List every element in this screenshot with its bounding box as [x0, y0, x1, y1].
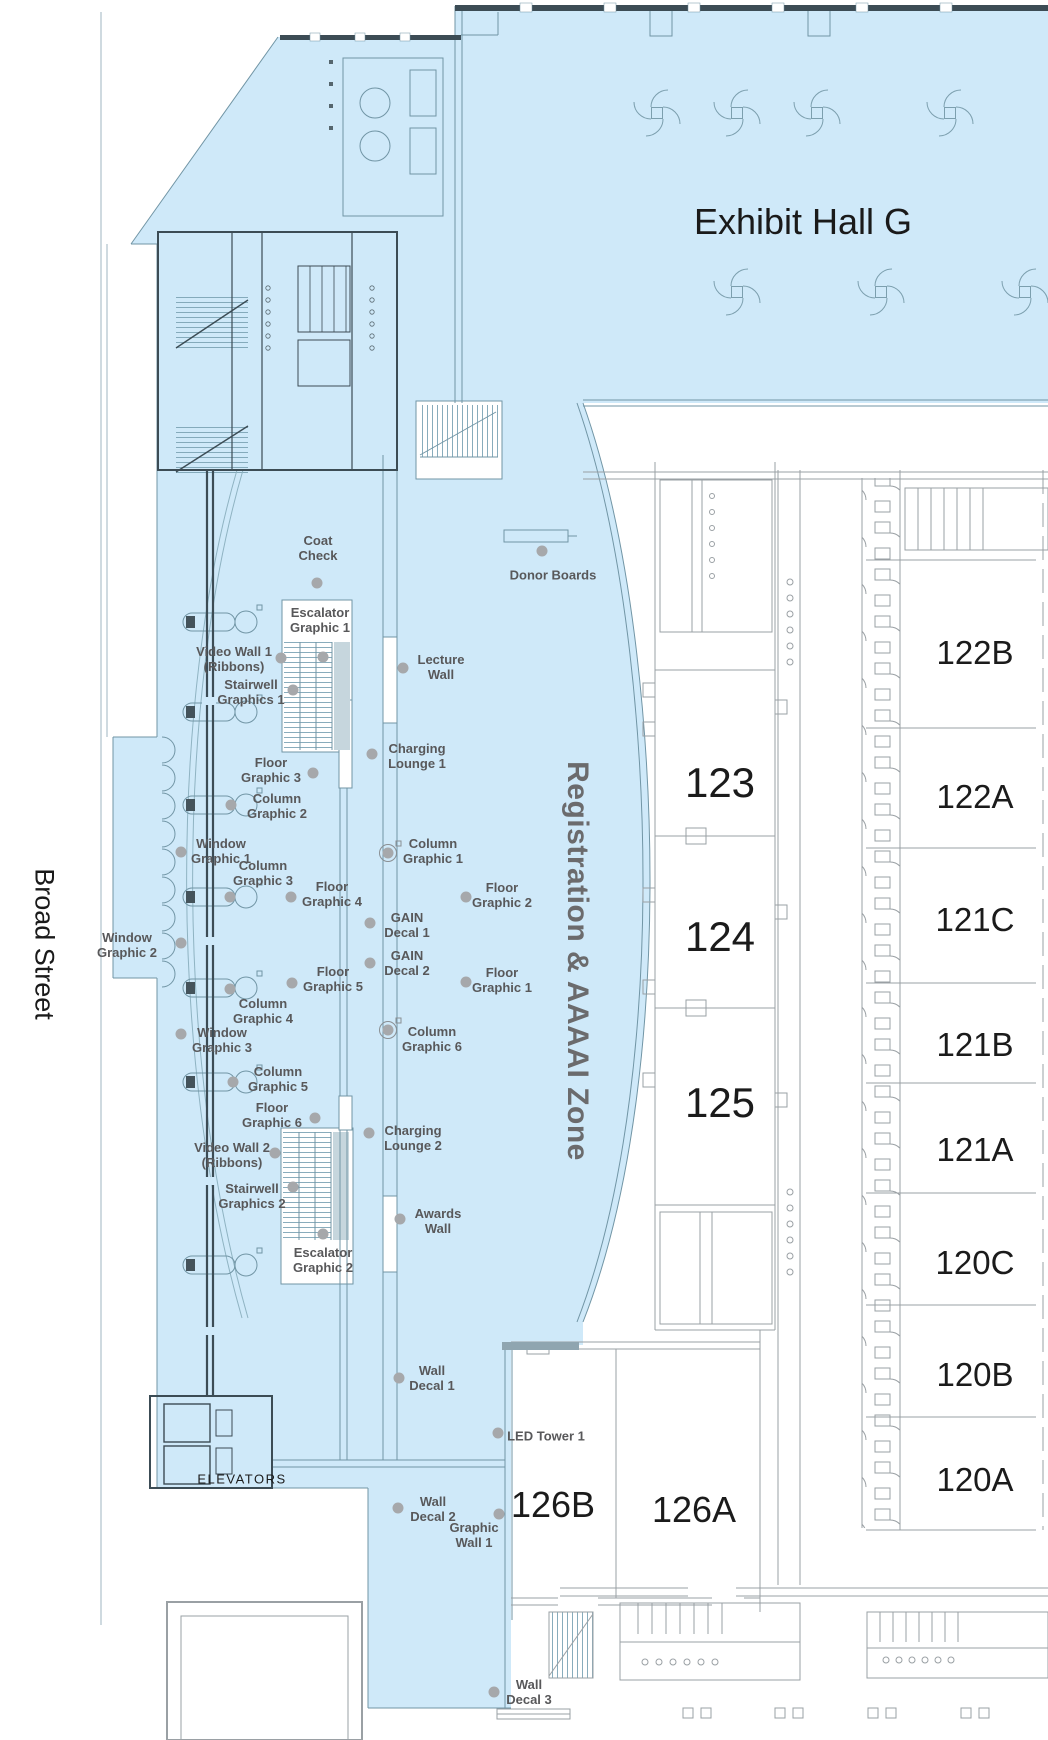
exhibit-hall-zone	[455, 6, 1048, 403]
zone-fills	[113, 6, 1048, 1708]
lecture-wall-bar	[383, 637, 397, 723]
awards-wall-bar	[383, 1196, 397, 1272]
floorplan-linework	[0, 0, 1048, 1740]
bottom-column-pairs	[683, 1708, 989, 1718]
street-line	[101, 12, 107, 1625]
floorplan-canvas: CoatCheckDonor BoardsEscalatorGraphic 1V…	[0, 0, 1048, 1740]
corridor-bar-2	[339, 1096, 352, 1130]
